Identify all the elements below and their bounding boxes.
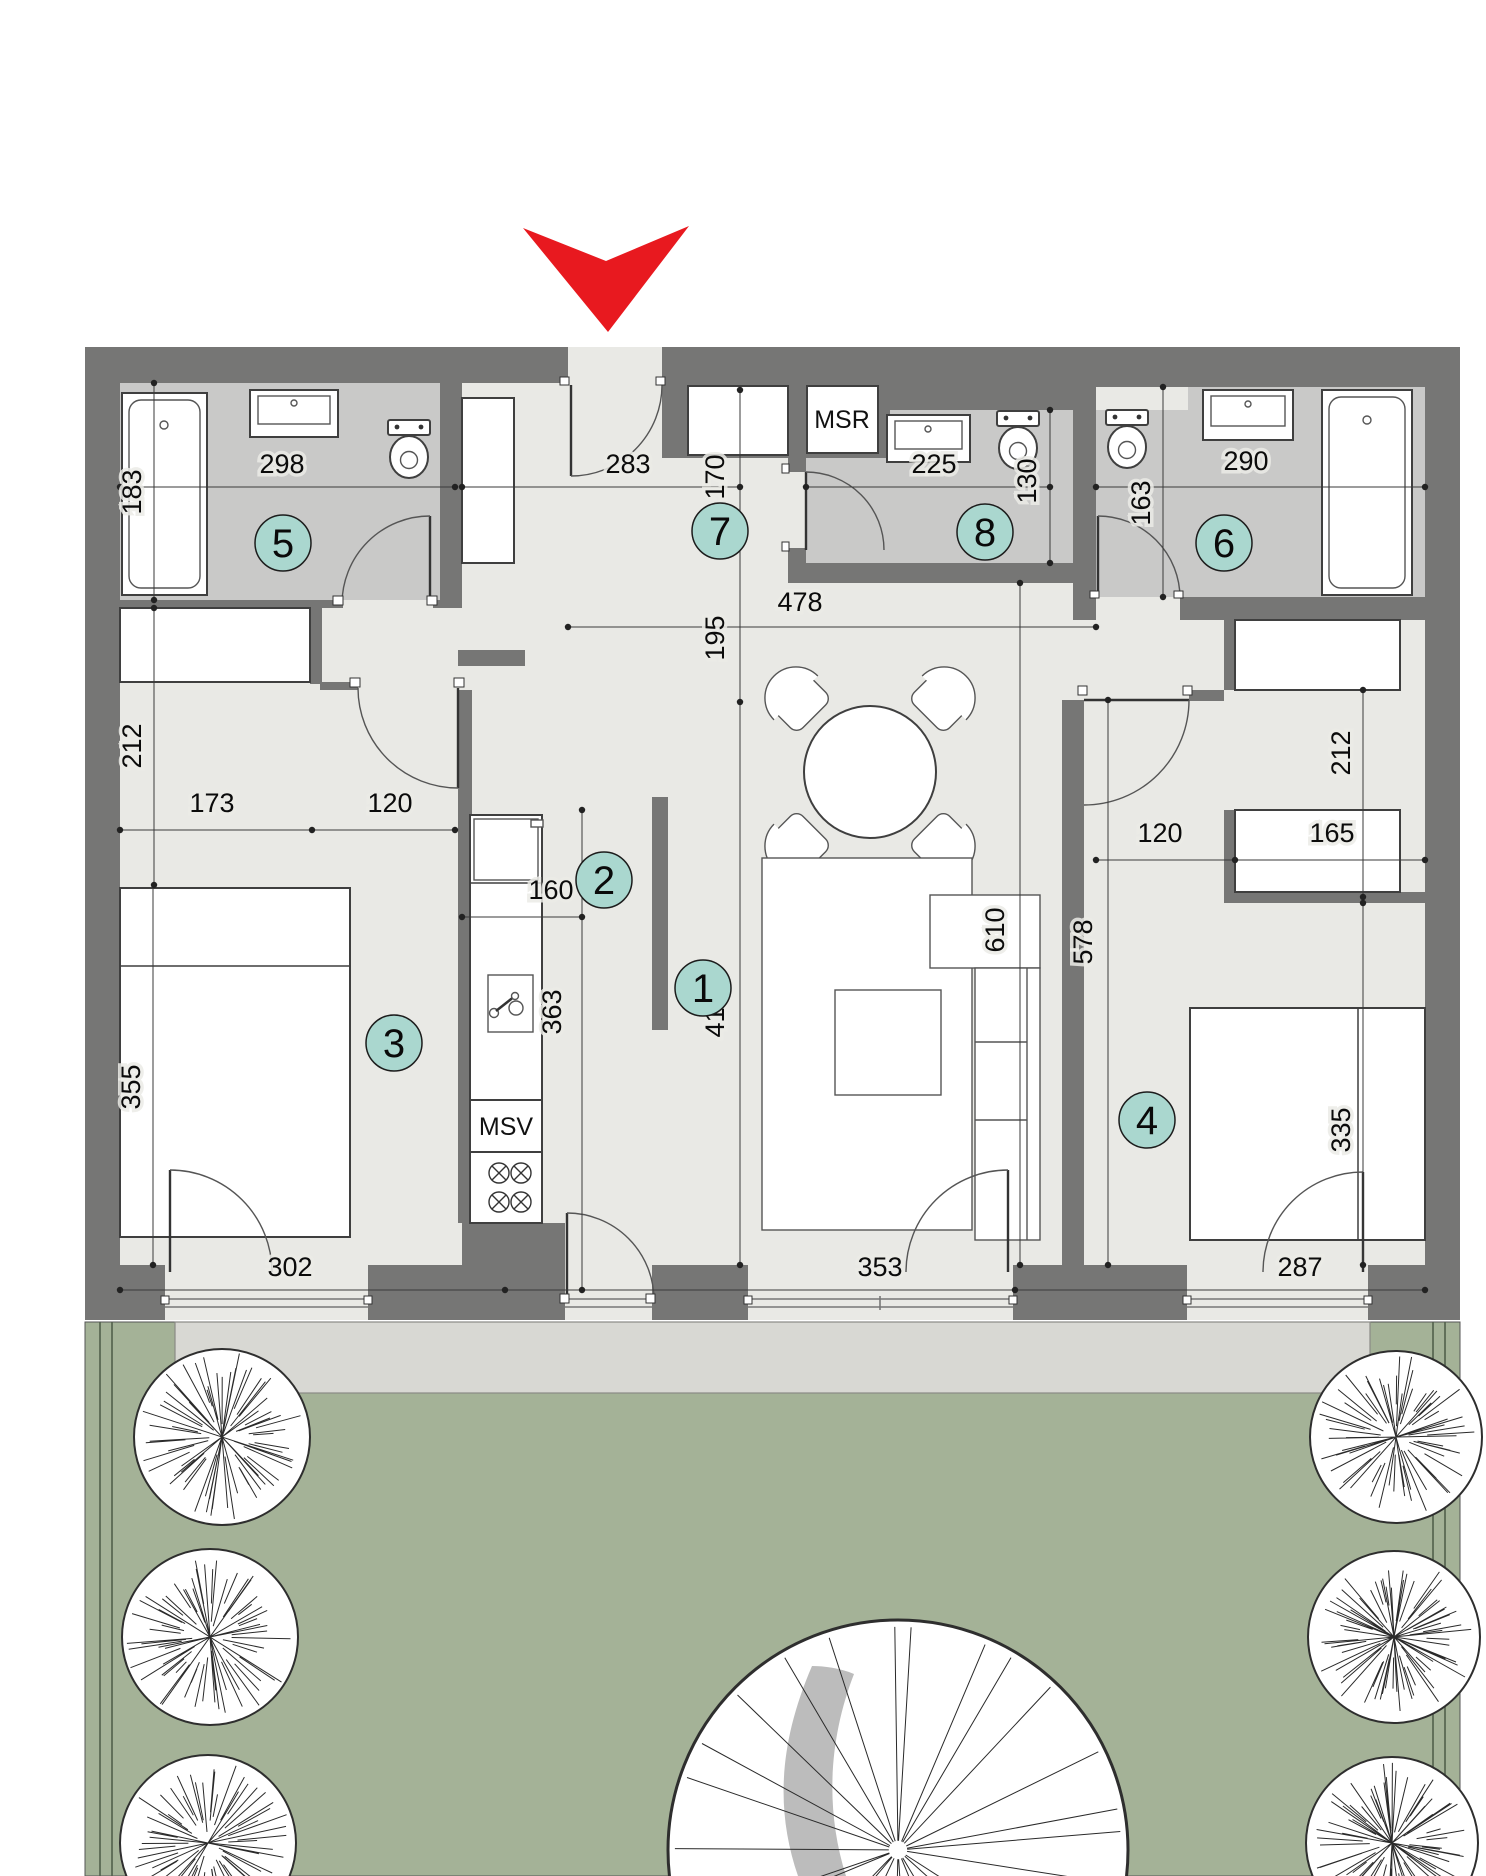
floor-plan: MSR xyxy=(0,0,1486,1876)
dim-120-right: 120 xyxy=(1137,818,1182,848)
svg-text:3: 3 xyxy=(383,1022,405,1066)
svg-text:5: 5 xyxy=(272,522,294,566)
tree-icon xyxy=(1308,1551,1480,1723)
room-badge-4: 4 xyxy=(1119,1092,1175,1148)
dim-363: 363 xyxy=(537,989,567,1034)
hall-closet xyxy=(688,386,788,455)
tree-icon xyxy=(134,1349,310,1525)
dim-610: 610 xyxy=(980,907,1010,952)
room-badge-6: 6 xyxy=(1196,515,1252,571)
svg-text:2: 2 xyxy=(593,859,615,903)
entrance-arrow-icon xyxy=(523,226,689,332)
floor-plan-page: MSR xyxy=(0,0,1486,1876)
dim-195: 195 xyxy=(700,615,730,660)
bed xyxy=(1190,1008,1425,1240)
msr-shaft: MSR xyxy=(807,386,878,453)
dim-120-left: 120 xyxy=(367,788,412,818)
dim-302: 302 xyxy=(267,1252,312,1282)
msv-shaft: MSV xyxy=(470,1100,542,1152)
dim-160: 160 xyxy=(528,875,573,905)
stove xyxy=(470,1152,542,1223)
dim-173: 173 xyxy=(189,788,234,818)
msv-label: MSV xyxy=(479,1113,534,1141)
room-badge-1: 1 xyxy=(675,960,731,1016)
dim-290: 290 xyxy=(1223,446,1268,476)
hall-cabinet xyxy=(462,398,514,563)
bathtub xyxy=(1322,390,1412,595)
svg-text:1: 1 xyxy=(692,967,714,1011)
room-badge-2: 2 xyxy=(576,852,632,908)
svg-text:7: 7 xyxy=(709,510,731,554)
bed xyxy=(120,888,350,1237)
room-badge-7: 7 xyxy=(692,503,748,559)
svg-text:6: 6 xyxy=(1213,522,1235,566)
sink xyxy=(1203,390,1293,440)
dim-283: 283 xyxy=(605,449,650,479)
dim-225: 225 xyxy=(911,449,956,479)
dim-165: 165 xyxy=(1309,818,1354,848)
closet xyxy=(1235,620,1400,690)
dim-183: 183 xyxy=(117,469,147,514)
dim-335: 335 xyxy=(1326,1107,1356,1152)
tree-icon xyxy=(122,1549,298,1725)
fridge xyxy=(474,819,538,880)
svg-text:4: 4 xyxy=(1136,1099,1158,1143)
tree-icon xyxy=(1310,1351,1482,1523)
dining-table xyxy=(804,706,936,838)
toilet xyxy=(1106,410,1148,468)
msr-label: MSR xyxy=(814,406,870,434)
terrace xyxy=(175,1322,1370,1393)
toilet xyxy=(388,420,430,478)
room-badge-8: 8 xyxy=(957,504,1013,560)
sink xyxy=(250,390,338,437)
dim-130: 130 xyxy=(1012,458,1042,503)
dim-287: 287 xyxy=(1277,1252,1322,1282)
dim-170: 170 xyxy=(700,454,730,499)
dim-212-right: 212 xyxy=(1326,730,1356,775)
dim-298: 298 xyxy=(259,449,304,479)
coffee-table xyxy=(835,990,941,1095)
closet xyxy=(120,608,310,682)
kitchen-counter xyxy=(470,815,543,1100)
dim-578: 578 xyxy=(1068,919,1098,964)
dim-478: 478 xyxy=(777,587,822,617)
kitchen-sink xyxy=(488,975,533,1032)
dim-355: 355 xyxy=(116,1064,146,1109)
dim-212-left: 212 xyxy=(117,723,147,768)
svg-text:8: 8 xyxy=(974,511,996,555)
room-badge-5: 5 xyxy=(255,515,311,571)
room-badge-3: 3 xyxy=(366,1015,422,1071)
dim-353: 353 xyxy=(857,1252,902,1282)
dim-163: 163 xyxy=(1126,480,1156,525)
